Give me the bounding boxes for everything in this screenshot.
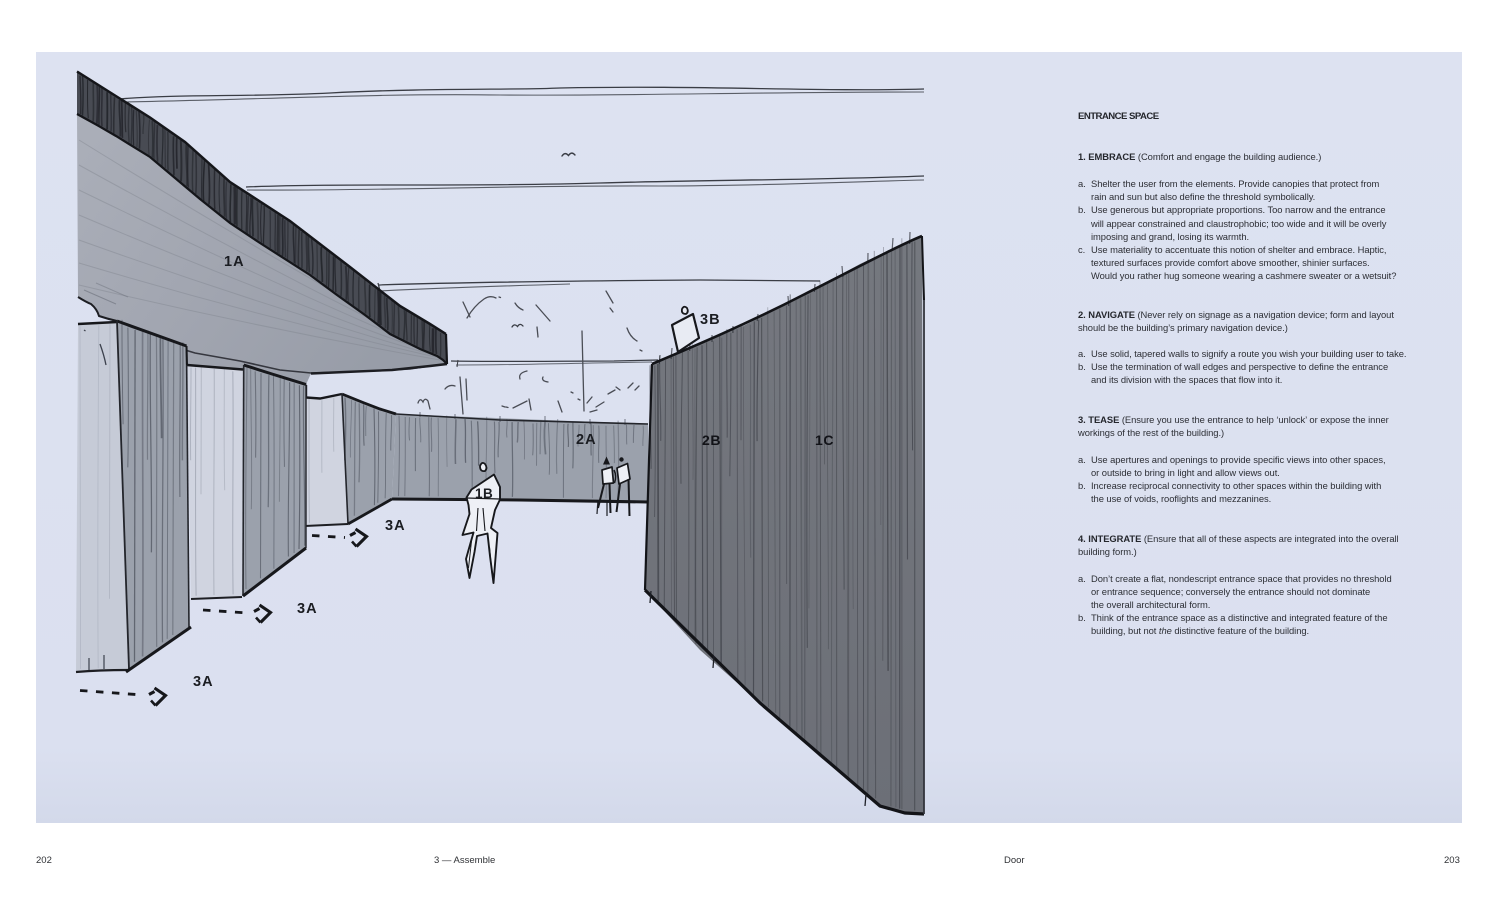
svg-text:2B: 2B [702,432,721,448]
svg-text:3A: 3A [297,601,318,617]
svg-text:1A: 1A [224,254,245,270]
svg-text:3A: 3A [193,674,214,690]
svg-text:3A: 3A [385,518,406,534]
svg-text:1C: 1C [815,432,834,448]
svg-text:1B: 1B [475,486,493,501]
svg-text:2A: 2A [576,432,597,448]
svg-text:3B: 3B [700,312,721,328]
